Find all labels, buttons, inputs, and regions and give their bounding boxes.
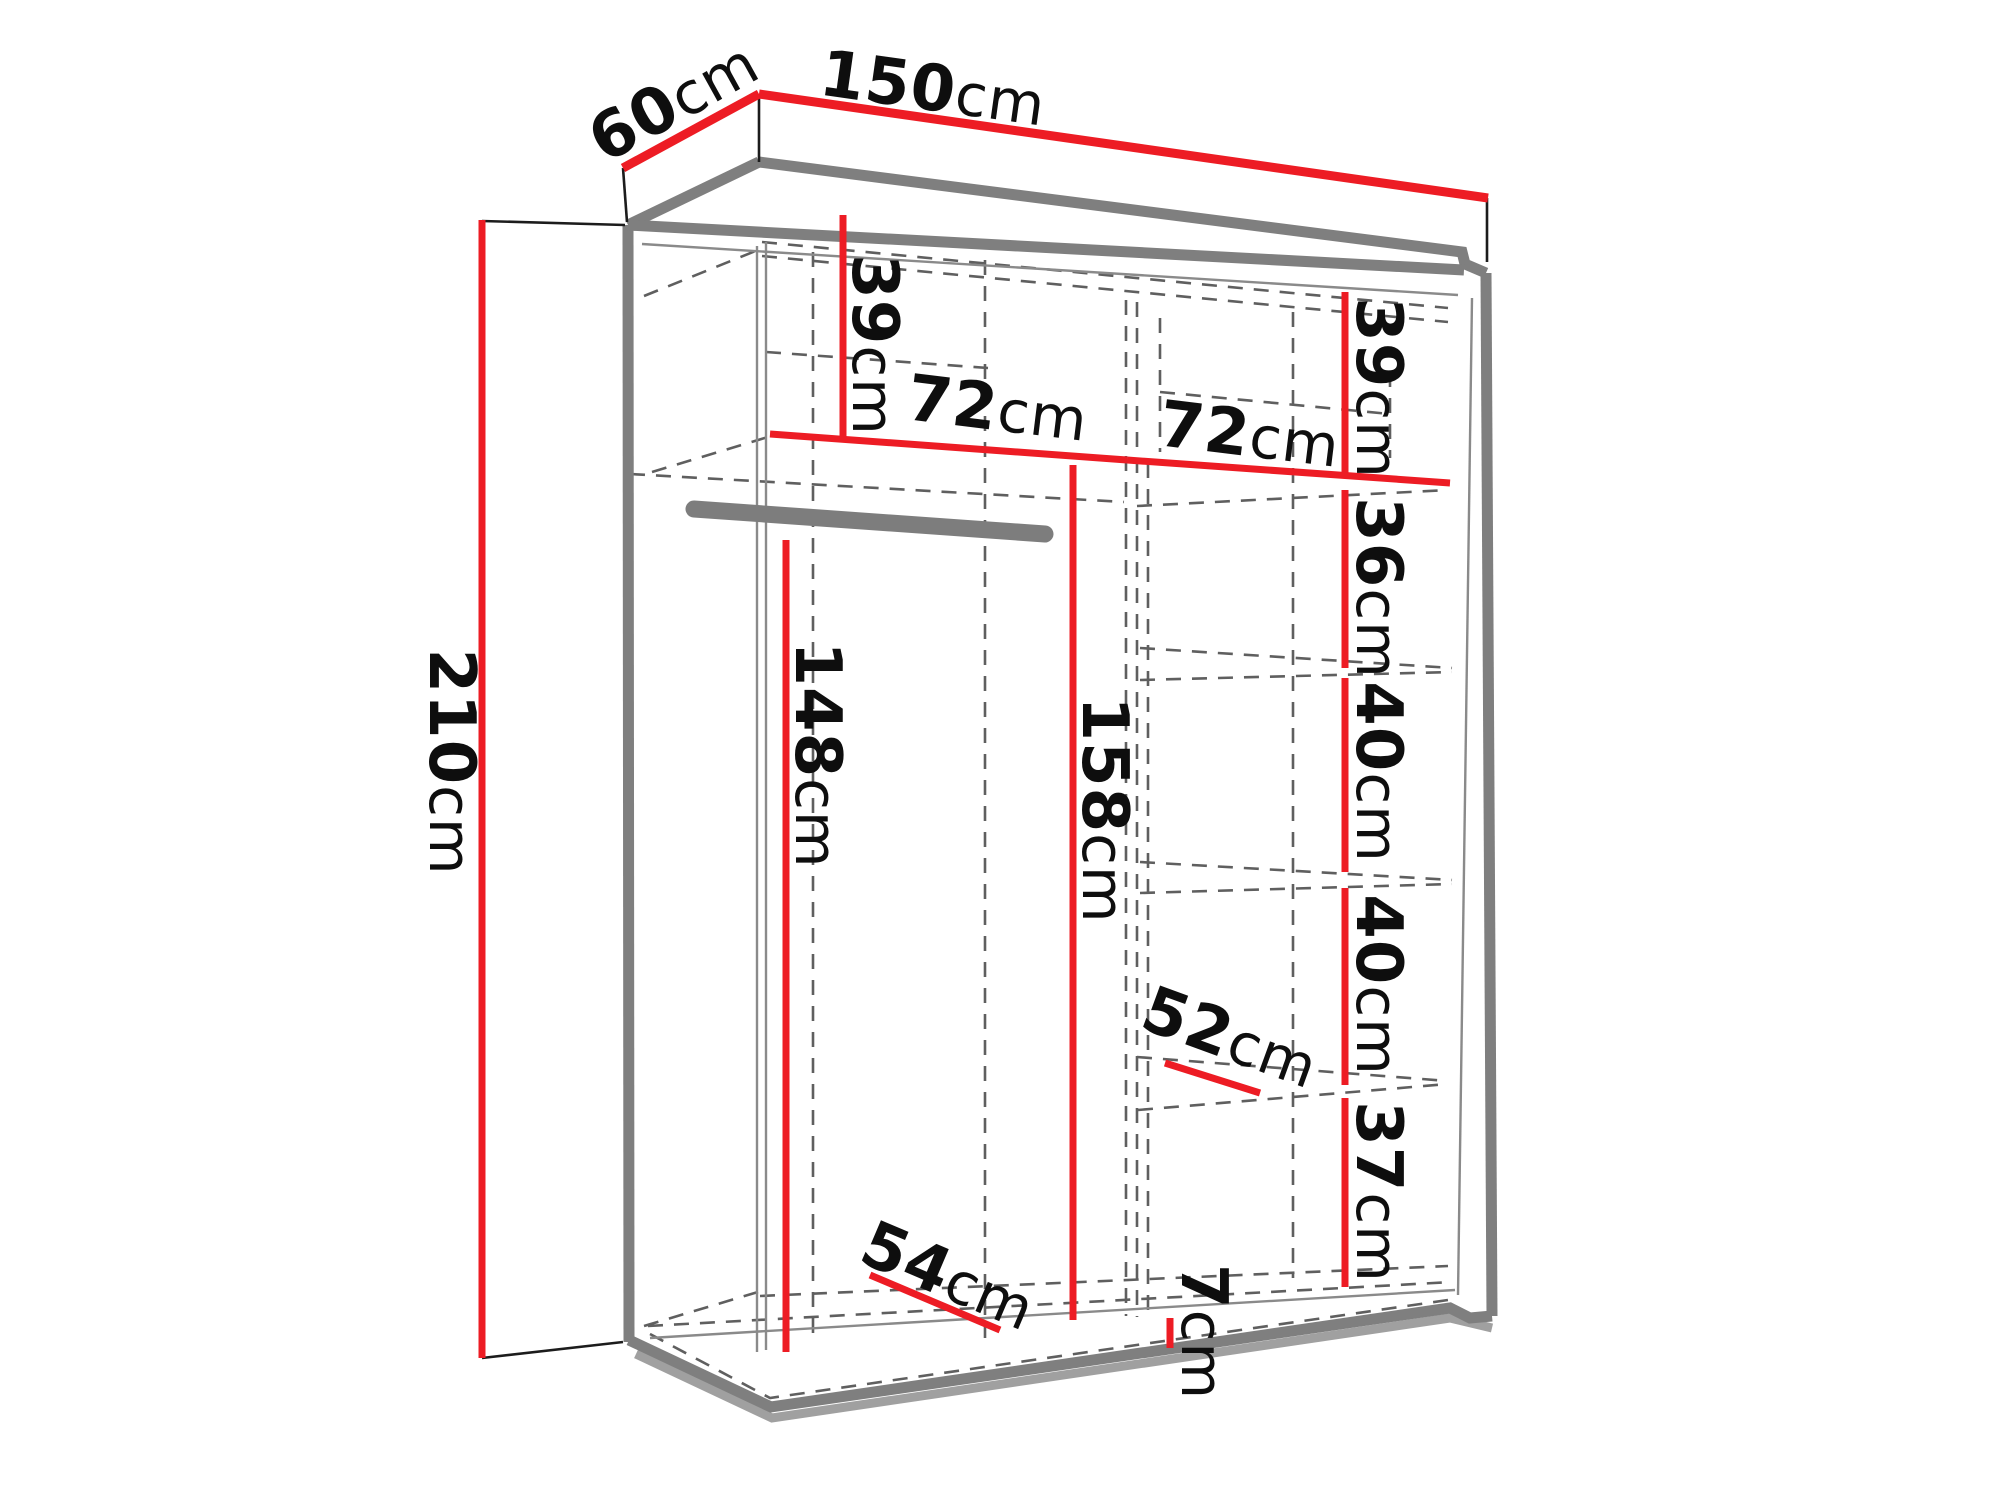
floor-front-dashed	[648, 1282, 1452, 1326]
shelf2-front-dashed	[1140, 884, 1452, 893]
label-40a: 40cm	[1341, 681, 1415, 862]
label-plinth-7: 7cm	[1166, 1264, 1240, 1400]
label-depth-60: 60cm	[577, 25, 772, 178]
right-panel-inner-edge	[1458, 298, 1472, 1295]
front-left-edge	[628, 225, 629, 1342]
left-panel-bottom-dashed	[644, 1292, 758, 1326]
left-shelf-side-dashed	[652, 437, 768, 472]
diagram-canvas: 60cm 150cm 210cm 39cm 72cm 72cm 148cm 15…	[0, 0, 2000, 1500]
base-front-edge	[629, 1308, 1492, 1407]
left-shelf-front-dashed	[630, 474, 1124, 502]
label-37: 37cm	[1341, 1101, 1415, 1282]
label-left-39: 39cm	[837, 254, 911, 435]
shelf2-back-dashed	[1140, 862, 1452, 880]
label-right-39: 39cm	[1341, 297, 1415, 478]
height-extension-bottom	[482, 1342, 623, 1358]
label-hanging-148: 148cm	[780, 642, 854, 869]
depth-extension-front	[623, 168, 627, 222]
wardrobe-dimension-diagram: 60cm 150cm 210cm 39cm 72cm 72cm 148cm 15…	[0, 0, 2000, 1500]
top-left-side-edge	[628, 162, 759, 225]
left-panel-top-dashed	[644, 250, 758, 296]
label-right-shelf-72: 72cm	[1155, 387, 1344, 483]
label-width-150: 150cm	[815, 37, 1050, 142]
label-inner-158: 158cm	[1067, 697, 1141, 924]
front-right-edge	[1486, 273, 1492, 1316]
label-36: 36cm	[1341, 497, 1415, 678]
hanging-rod	[694, 509, 1045, 534]
label-height-210: 210cm	[414, 649, 488, 876]
label-40b: 40cm	[1341, 894, 1415, 1075]
height-extension-top	[482, 221, 625, 225]
